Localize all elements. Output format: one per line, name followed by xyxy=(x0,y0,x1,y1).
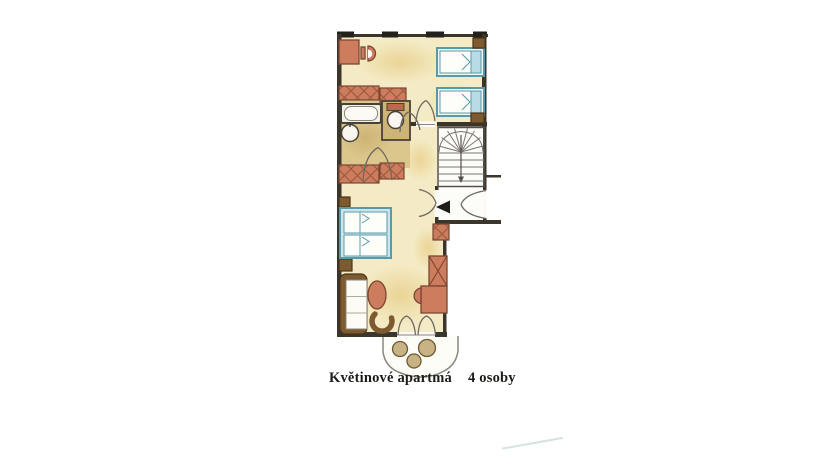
hatched-wall xyxy=(339,86,379,100)
kitchen-counter-icon xyxy=(421,286,447,313)
wardrobe-icon xyxy=(339,40,359,64)
double-bed-icon xyxy=(340,208,391,258)
apartment-name: Květinové apartmá xyxy=(329,370,452,387)
nightstand-icon xyxy=(339,259,352,271)
nightstand-icon xyxy=(473,38,485,48)
hatched-wall xyxy=(433,224,449,240)
wc-room xyxy=(382,101,410,140)
floor-plan xyxy=(0,0,815,470)
bathtub-icon xyxy=(341,104,381,123)
washbasin-icon xyxy=(361,46,376,61)
coffee-table-icon xyxy=(368,281,386,309)
wall-pier xyxy=(382,32,398,38)
nightstand-icon xyxy=(471,113,484,123)
balcony-chair-icon xyxy=(393,342,408,357)
balcony-table-icon xyxy=(407,354,421,368)
apartment-capacity: 4 osoby xyxy=(468,370,516,387)
hatched-wall xyxy=(339,165,379,183)
nightstand-icon xyxy=(339,197,350,207)
scan-artifact-line xyxy=(503,438,562,449)
sofa-icon xyxy=(340,274,367,334)
wall-pier xyxy=(426,32,444,38)
caption: Květinové apartmá 4 osoby xyxy=(329,370,516,387)
balcony-chair-icon xyxy=(419,340,436,357)
single-bed-icon xyxy=(437,88,484,116)
single-bed-icon xyxy=(437,48,484,76)
entrance-opening xyxy=(483,190,488,218)
wardrobe-icon xyxy=(429,256,447,286)
toilet-tank-icon xyxy=(387,104,404,111)
scanned-page: Květinové apartmá 4 osoby xyxy=(0,0,815,470)
